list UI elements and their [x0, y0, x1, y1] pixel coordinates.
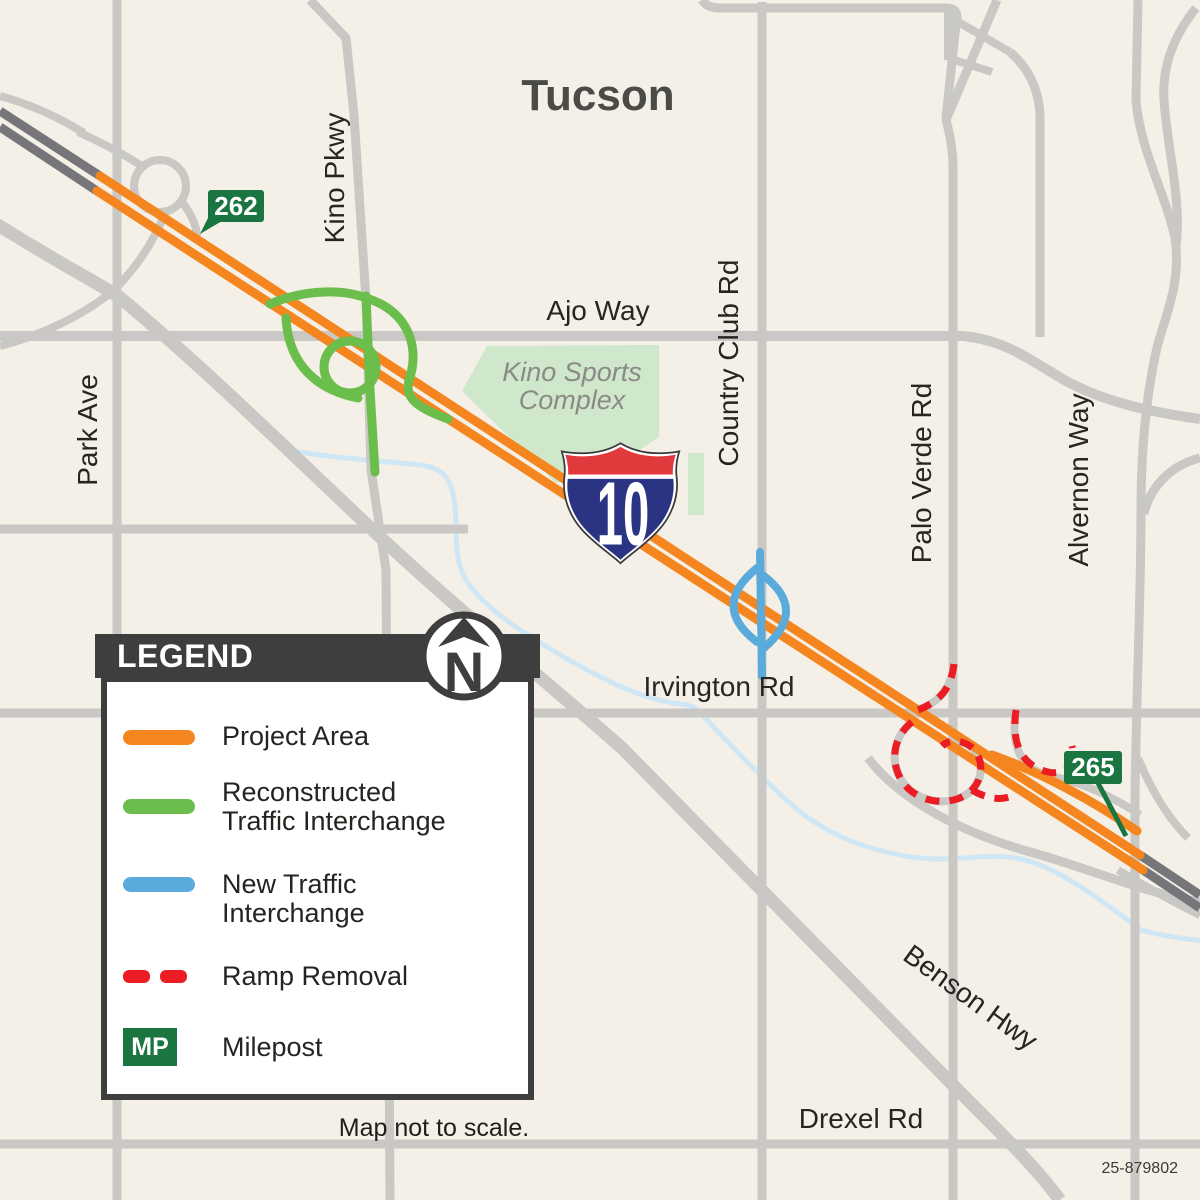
- ramp-west-1: [78, 132, 140, 165]
- interstate-10-shield: 10: [558, 443, 683, 569]
- project-number: 25-879802: [1101, 1160, 1178, 1178]
- kino-sports-label-line1: Kino Sports: [502, 357, 642, 387]
- legend-title: LEGEND: [117, 634, 253, 678]
- legend-item-milepost: Milepost: [222, 1033, 323, 1062]
- legend-item-ramp-removal: Ramp Removal: [222, 962, 408, 991]
- road-east-connector: [1144, 458, 1200, 514]
- ramp-removal-swatch-dash2: [160, 970, 187, 983]
- milepost-swatch: MP: [123, 1028, 177, 1066]
- road-top-elbow: [702, 0, 957, 118]
- road-label-ajo-way: Ajo Way: [546, 295, 649, 326]
- legend-item-new-interchange-line1: New Traffic: [222, 870, 365, 899]
- legend-item-project-area: Project Area: [222, 722, 369, 751]
- legend-item-new-interchange-line2: Interchange: [222, 899, 365, 928]
- shield-route-number: 10: [597, 465, 650, 565]
- milepost-swatch-text: MP: [131, 1033, 169, 1062]
- legend-item-reconstructed-line1: Reconstructed: [222, 778, 446, 807]
- reconstructed-interchange-swatch: [123, 799, 195, 814]
- project-map: 10 Tucson Park Ave Kino Pkwy Ajo Way Cou…: [0, 0, 1200, 1200]
- road-label-alvernon: Alvernon Way: [1063, 393, 1094, 566]
- project-area-swatch: [123, 730, 195, 745]
- north-arrow: N: [418, 610, 510, 702]
- road-label-palo-verde: Palo Verde Rd: [906, 383, 937, 564]
- scale-note: Map not to scale.: [284, 1114, 584, 1143]
- road-label-kino-pkwy: Kino Pkwy: [319, 113, 350, 244]
- road-label-drexel: Drexel Rd: [799, 1103, 923, 1134]
- new-interchange-swatch: [123, 877, 195, 892]
- north-label: N: [444, 640, 484, 702]
- legend-item-reconstructed: Reconstructed Traffic Interchange: [222, 778, 446, 836]
- legend-item-reconstructed-line2: Traffic Interchange: [222, 807, 446, 836]
- road-label-benson-hwy: Benson Hwy: [898, 939, 1043, 1056]
- road-ne-connector: [1010, 52, 1040, 337]
- ramp-removal-swatch-dash1: [123, 970, 150, 983]
- ramp-se-1: [1138, 758, 1188, 838]
- city-label: Tucson: [521, 71, 674, 120]
- road-label-irvington: Irvington Rd: [644, 671, 795, 702]
- milepost-265-value: 265: [1071, 752, 1114, 782]
- legend: LEGEND Project Area Reconstructed Traffi…: [95, 634, 540, 1100]
- kino-sports-label-line2: Complex: [519, 385, 627, 415]
- milepost-262-value: 262: [214, 191, 257, 221]
- milepost-262: 262: [200, 190, 264, 234]
- road-label-park-ave: Park Ave: [72, 374, 103, 486]
- legend-item-new-interchange: New Traffic Interchange: [222, 870, 365, 928]
- road-label-country-club: Country Club Rd: [713, 260, 744, 467]
